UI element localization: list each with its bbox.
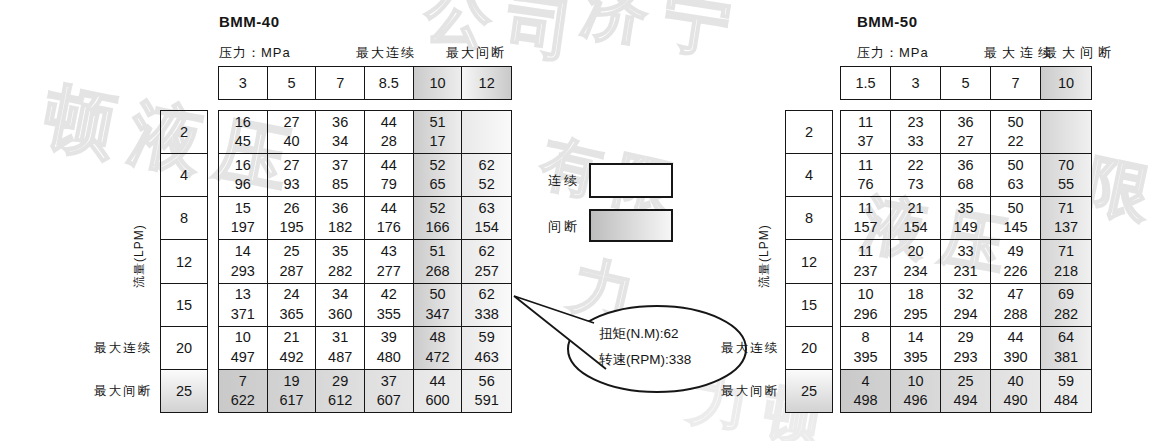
data-cell: 42355 bbox=[365, 284, 414, 327]
speed-value: 617 bbox=[279, 391, 303, 411]
torque-value: 52 bbox=[429, 156, 445, 176]
torque-value: 25 bbox=[957, 372, 973, 392]
torque-value: 50 bbox=[1007, 199, 1023, 219]
speed-value: 37 bbox=[857, 132, 873, 152]
max-continuous-header: 最大连续 bbox=[356, 44, 416, 62]
torque-value: 64 bbox=[1058, 328, 1074, 348]
pressure-value: 3 bbox=[239, 75, 247, 91]
torque-value: 50 bbox=[1007, 113, 1023, 133]
torque-value: 16 bbox=[235, 113, 251, 133]
data-cell: 13371 bbox=[219, 284, 268, 327]
torque-value: 62 bbox=[479, 242, 495, 262]
data-cell: 6252 bbox=[462, 154, 511, 197]
torque-value: 10 bbox=[857, 285, 873, 305]
speed-value: 93 bbox=[283, 175, 299, 195]
torque-value: 27 bbox=[283, 113, 299, 133]
flow-value: 20 bbox=[801, 340, 817, 356]
flow-value: 25 bbox=[176, 383, 192, 399]
data-cell: 14395 bbox=[891, 327, 941, 370]
torque-value: 11 bbox=[858, 242, 873, 262]
speed-value: 282 bbox=[1054, 305, 1078, 325]
torque-value: 44 bbox=[381, 113, 397, 133]
data-cell: 52166 bbox=[414, 197, 463, 240]
speed-value: 296 bbox=[853, 305, 877, 325]
torque-value: 29 bbox=[332, 372, 348, 392]
speed-value: 63 bbox=[1007, 175, 1023, 195]
data-cell: 47288 bbox=[991, 284, 1041, 327]
speed-value: 282 bbox=[328, 262, 352, 282]
pressure-cell: 10 bbox=[414, 67, 463, 99]
speed-value: 277 bbox=[377, 262, 401, 282]
data-cell: 48472 bbox=[414, 327, 463, 370]
speed-value: 295 bbox=[903, 305, 927, 325]
max-intermittent-row-label: 最大间断 bbox=[659, 383, 779, 400]
torque-value: 23 bbox=[907, 113, 923, 133]
torque-value: 10 bbox=[907, 372, 923, 392]
flow-axis-label: 流量(LPM) bbox=[756, 224, 773, 288]
torque-value: 44 bbox=[1007, 328, 1023, 348]
data-cell: 37607 bbox=[365, 370, 414, 412]
torque-value: 63 bbox=[479, 199, 495, 219]
speed-value: 76 bbox=[857, 175, 873, 195]
torque-value: 44 bbox=[381, 199, 397, 219]
pressure-header-row: 1.535710 bbox=[840, 66, 1092, 100]
torque-value: 51 bbox=[429, 113, 445, 133]
speed-value: 65 bbox=[429, 175, 445, 195]
max-continuous-row-label: 最大连续 bbox=[32, 340, 152, 357]
speed-value: 40 bbox=[283, 132, 299, 152]
torque-value: 70 bbox=[1058, 156, 1074, 176]
flow-value: 2 bbox=[180, 124, 188, 140]
torque-value: 14 bbox=[235, 242, 251, 262]
flow-cell: 2 bbox=[161, 111, 207, 154]
table-title: BMM-40 bbox=[219, 13, 280, 30]
pressure-value: 5 bbox=[287, 75, 295, 91]
torque-value: 40 bbox=[1007, 372, 1023, 392]
data-cell: 5117 bbox=[414, 111, 463, 154]
speed-value: 472 bbox=[425, 348, 449, 368]
data-cell: 3785 bbox=[316, 154, 365, 197]
speed-value: 154 bbox=[903, 218, 927, 238]
torque-value: 69 bbox=[1058, 285, 1074, 305]
data-cell: 35149 bbox=[941, 197, 991, 240]
speed-value: 494 bbox=[953, 391, 977, 411]
pressure-cell: 5 bbox=[941, 67, 991, 99]
torque-value: 11 bbox=[858, 113, 873, 133]
flow-cell: 20 bbox=[786, 327, 832, 370]
data-cell: 69282 bbox=[1041, 284, 1091, 327]
speed-value: 381 bbox=[1054, 348, 1078, 368]
callout-tail bbox=[514, 296, 606, 369]
data-cell: 29293 bbox=[941, 327, 991, 370]
data-cell: 5022 bbox=[991, 111, 1041, 154]
torque-value: 62 bbox=[479, 156, 495, 176]
data-cell: 49226 bbox=[991, 240, 1041, 283]
data-cell: 7055 bbox=[1041, 154, 1091, 197]
max-continuous-row-label: 最大连续 bbox=[659, 340, 779, 357]
torque-value: 62 bbox=[479, 285, 495, 305]
flow-value: 8 bbox=[805, 210, 813, 226]
speed-value: 34 bbox=[332, 132, 348, 152]
speed-value: 226 bbox=[1003, 262, 1027, 282]
table-title: BMM-50 bbox=[857, 13, 918, 30]
data-cell: 18295 bbox=[891, 284, 941, 327]
torque-value: 16 bbox=[235, 156, 251, 176]
torque-value: 39 bbox=[381, 328, 397, 348]
speed-value: 27 bbox=[957, 132, 973, 152]
data-cell: 20234 bbox=[891, 240, 941, 283]
data-cell: 4479 bbox=[365, 154, 414, 197]
data-cell: 8395 bbox=[841, 327, 891, 370]
speed-value: 52 bbox=[479, 175, 495, 195]
flow-value: 2 bbox=[805, 124, 813, 140]
data-cell: 3627 bbox=[941, 111, 991, 154]
speed-value: 355 bbox=[377, 305, 401, 325]
torque-value: 48 bbox=[429, 328, 445, 348]
data-cell: 51268 bbox=[414, 240, 463, 283]
data-cell: 2273 bbox=[891, 154, 941, 197]
torque-value: 47 bbox=[1007, 285, 1023, 305]
pressure-value: 8.5 bbox=[379, 75, 399, 91]
speed-value: 484 bbox=[1054, 391, 1078, 411]
speed-value: 463 bbox=[475, 348, 499, 368]
data-cell: 2740 bbox=[268, 111, 317, 154]
pressure-cell: 8.5 bbox=[365, 67, 414, 99]
torque-value: 13 bbox=[235, 285, 251, 305]
flow-axis-label: 流量(LPM) bbox=[131, 224, 148, 288]
data-cell: 3634 bbox=[316, 111, 365, 154]
data-cell: 39480 bbox=[365, 327, 414, 370]
speed-value: 176 bbox=[377, 218, 401, 238]
data-grid: 1137233336275022117622733668506370551115… bbox=[840, 110, 1092, 413]
speed-value: 22 bbox=[1007, 132, 1023, 152]
data-cell: 10497 bbox=[219, 327, 268, 370]
data-cell: 71218 bbox=[1041, 240, 1091, 283]
torque-value: 51 bbox=[429, 242, 445, 262]
torque-value: 8 bbox=[861, 328, 869, 348]
torque-value: 11 bbox=[858, 199, 873, 219]
speed-value: 45 bbox=[235, 132, 251, 152]
speed-value: 612 bbox=[328, 391, 352, 411]
flow-cell: 12 bbox=[786, 240, 832, 283]
flow-value: 20 bbox=[176, 340, 192, 356]
flow-cell: 25 bbox=[161, 370, 207, 412]
pressure-cell: 3 bbox=[891, 67, 941, 99]
max-intermittent-header: 最大间断 bbox=[1044, 44, 1116, 62]
data-cell: 43277 bbox=[365, 240, 414, 283]
pressure-unit-label: 压力：MPa bbox=[857, 44, 929, 62]
speed-value: 237 bbox=[853, 262, 877, 282]
data-cell: 2793 bbox=[268, 154, 317, 197]
speed-value: 487 bbox=[328, 348, 352, 368]
data-cell: 25287 bbox=[268, 240, 317, 283]
flow-cell: 15 bbox=[161, 284, 207, 327]
flow-cell: 8 bbox=[161, 197, 207, 240]
speed-value: 137 bbox=[1054, 218, 1078, 238]
torque-value: 27 bbox=[283, 156, 299, 176]
torque-value: 71 bbox=[1058, 199, 1074, 219]
data-cell: 26195 bbox=[268, 197, 317, 240]
speed-value: 17 bbox=[429, 132, 445, 152]
torque-value: 59 bbox=[479, 328, 495, 348]
speed-value: 257 bbox=[475, 262, 499, 282]
speed-value: 268 bbox=[425, 262, 449, 282]
speed-value: 497 bbox=[231, 348, 255, 368]
speed-value: 157 bbox=[853, 218, 877, 238]
speed-value: 480 bbox=[377, 348, 401, 368]
pressure-value: 3 bbox=[911, 75, 919, 91]
data-cell: 40490 bbox=[991, 370, 1041, 412]
pressure-cell: 7 bbox=[991, 67, 1041, 99]
speed-value: 338 bbox=[475, 305, 499, 325]
datasheet-canvas: 公司 济宁 顿液压 有限 力 液压 限 力顿 连续 间断 扭矩(N.M):62 … bbox=[0, 0, 1151, 441]
data-cell: 19617 bbox=[268, 370, 317, 412]
speed-value: 96 bbox=[235, 175, 251, 195]
pressure-cell: 3 bbox=[219, 67, 268, 99]
flow-value: 4 bbox=[180, 167, 188, 183]
torque-value: 49 bbox=[1007, 242, 1023, 262]
torque-value: 24 bbox=[283, 285, 299, 305]
speed-value: 288 bbox=[1003, 305, 1027, 325]
data-cell: 1137 bbox=[841, 111, 891, 154]
data-cell: 35282 bbox=[316, 240, 365, 283]
pressure-value: 5 bbox=[961, 75, 969, 91]
flow-value: 15 bbox=[176, 297, 192, 313]
torque-value: 36 bbox=[332, 113, 348, 133]
torque-value: 22 bbox=[907, 156, 923, 176]
speed-value: 33 bbox=[907, 132, 923, 152]
flow-value: 8 bbox=[180, 210, 188, 226]
torque-value: 36 bbox=[957, 156, 973, 176]
speed-value: 498 bbox=[853, 391, 877, 411]
data-cell: 44176 bbox=[365, 197, 414, 240]
torque-value: 25 bbox=[283, 242, 299, 262]
torque-value: 32 bbox=[957, 285, 973, 305]
data-cell bbox=[1041, 111, 1091, 154]
data-cell: 1645 bbox=[219, 111, 268, 154]
data-cell: 59484 bbox=[1041, 370, 1091, 412]
pressure-cell: 7 bbox=[316, 67, 365, 99]
torque-value: 11 bbox=[858, 156, 873, 176]
pressure-cell: 1.5 bbox=[841, 67, 891, 99]
data-cell: 44600 bbox=[414, 370, 463, 412]
torque-value: 56 bbox=[479, 372, 495, 392]
flow-value: 15 bbox=[801, 297, 817, 313]
data-cell: 1696 bbox=[219, 154, 268, 197]
pressure-header-row: 3578.51012 bbox=[218, 66, 512, 100]
torque-value: 4 bbox=[861, 372, 869, 392]
speed-value: 234 bbox=[903, 262, 927, 282]
flow-value: 4 bbox=[805, 167, 813, 183]
speed-value: 145 bbox=[1003, 218, 1027, 238]
flow-header-column: 24812152025 bbox=[785, 110, 833, 413]
speed-value: 293 bbox=[953, 348, 977, 368]
data-cell: 25494 bbox=[941, 370, 991, 412]
pressure-cell: 10 bbox=[1041, 67, 1091, 99]
torque-value: 37 bbox=[381, 372, 397, 392]
torque-value: 7 bbox=[239, 372, 247, 392]
data-cell: 34360 bbox=[316, 284, 365, 327]
max-intermittent-row-label: 最大间断 bbox=[32, 383, 152, 400]
data-cell: 7622 bbox=[219, 370, 268, 412]
speed-value: 28 bbox=[381, 132, 397, 152]
speed-value: 360 bbox=[328, 305, 352, 325]
pressure-value: 7 bbox=[336, 75, 344, 91]
data-cell: 5063 bbox=[991, 154, 1041, 197]
data-cell: 1176 bbox=[841, 154, 891, 197]
speed-value: 607 bbox=[377, 391, 401, 411]
speed-value: 371 bbox=[231, 305, 255, 325]
data-cell: 32294 bbox=[941, 284, 991, 327]
torque-value: 36 bbox=[332, 199, 348, 219]
speed-value: 390 bbox=[1003, 348, 1027, 368]
torque-value: 21 bbox=[907, 199, 923, 219]
data-cell: 11157 bbox=[841, 197, 891, 240]
pressure-value: 10 bbox=[1058, 75, 1074, 91]
speed-value: 294 bbox=[953, 305, 977, 325]
torque-value: 50 bbox=[429, 285, 445, 305]
data-cell: 10296 bbox=[841, 284, 891, 327]
data-cell: 29612 bbox=[316, 370, 365, 412]
pressure-cell: 5 bbox=[268, 67, 317, 99]
flow-cell: 15 bbox=[786, 284, 832, 327]
data-cell: 64381 bbox=[1041, 327, 1091, 370]
data-cell: 36182 bbox=[316, 197, 365, 240]
data-cell: 63154 bbox=[462, 197, 511, 240]
data-cell: 21492 bbox=[268, 327, 317, 370]
data-cell: 4498 bbox=[841, 370, 891, 412]
torque-value: 52 bbox=[429, 199, 445, 219]
speed-value: 218 bbox=[1054, 262, 1078, 282]
torque-value: 31 bbox=[332, 328, 348, 348]
speed-value: 591 bbox=[475, 391, 499, 411]
torque-value: 44 bbox=[381, 156, 397, 176]
data-cell: 24365 bbox=[268, 284, 317, 327]
speed-value: 492 bbox=[279, 348, 303, 368]
data-cell: 56591 bbox=[462, 370, 511, 412]
data-cell: 33231 bbox=[941, 240, 991, 283]
torque-value: 42 bbox=[381, 285, 397, 305]
torque-value: 36 bbox=[957, 113, 973, 133]
data-cell: 3668 bbox=[941, 154, 991, 197]
torque-value: 35 bbox=[957, 199, 973, 219]
pressure-value: 7 bbox=[1011, 75, 1019, 91]
torque-value: 37 bbox=[332, 156, 348, 176]
torque-value: 26 bbox=[283, 199, 299, 219]
pressure-value: 10 bbox=[429, 75, 445, 91]
torque-value: 18 bbox=[907, 285, 923, 305]
speed-value: 622 bbox=[231, 391, 255, 411]
data-cell: 62338 bbox=[462, 284, 511, 327]
speed-value: 68 bbox=[957, 175, 973, 195]
data-cell: 44390 bbox=[991, 327, 1041, 370]
torque-value: 29 bbox=[957, 328, 973, 348]
speed-value: 166 bbox=[425, 218, 449, 238]
data-cell: 21154 bbox=[891, 197, 941, 240]
pressure-unit-label: 压力：MPa bbox=[219, 44, 291, 62]
flow-cell: 2 bbox=[786, 111, 832, 154]
pressure-value: 1.5 bbox=[855, 75, 875, 91]
data-cell: 10496 bbox=[891, 370, 941, 412]
data-cell: 31487 bbox=[316, 327, 365, 370]
data-cell: 4428 bbox=[365, 111, 414, 154]
data-cell: 2333 bbox=[891, 111, 941, 154]
torque-value: 14 bbox=[907, 328, 923, 348]
speed-value: 231 bbox=[953, 262, 977, 282]
speed-value: 197 bbox=[231, 218, 255, 238]
speed-value: 600 bbox=[425, 391, 449, 411]
torque-value: 34 bbox=[332, 285, 348, 305]
flow-value: 12 bbox=[801, 254, 817, 270]
speed-value: 293 bbox=[231, 262, 255, 282]
speed-value: 154 bbox=[475, 218, 499, 238]
flow-value: 25 bbox=[801, 383, 817, 399]
torque-value: 43 bbox=[381, 242, 397, 262]
data-cell: 50145 bbox=[991, 197, 1041, 240]
data-cell: 15197 bbox=[219, 197, 268, 240]
torque-value: 50 bbox=[1007, 156, 1023, 176]
speed-value: 347 bbox=[425, 305, 449, 325]
flow-cell: 20 bbox=[161, 327, 207, 370]
speed-value: 182 bbox=[328, 218, 352, 238]
data-cell: 11237 bbox=[841, 240, 891, 283]
speed-value: 365 bbox=[279, 305, 303, 325]
flow-header-column: 24812152025 bbox=[160, 110, 208, 413]
data-grid: 1645274036344428511716962793378544795265… bbox=[218, 110, 512, 413]
torque-value: 35 bbox=[332, 242, 348, 262]
torque-value: 21 bbox=[283, 328, 299, 348]
data-cell: 62257 bbox=[462, 240, 511, 283]
speed-value: 395 bbox=[903, 348, 927, 368]
torque-value: 59 bbox=[1058, 372, 1074, 392]
flow-cell: 4 bbox=[161, 154, 207, 197]
speed-value: 85 bbox=[332, 175, 348, 195]
data-cell: 71137 bbox=[1041, 197, 1091, 240]
flow-cell: 12 bbox=[161, 240, 207, 283]
speed-value: 395 bbox=[853, 348, 877, 368]
torque-value: 19 bbox=[283, 372, 299, 392]
speed-value: 79 bbox=[381, 175, 397, 195]
flow-cell: 25 bbox=[786, 370, 832, 412]
speed-value: 287 bbox=[279, 262, 303, 282]
speed-value: 149 bbox=[953, 218, 977, 238]
max-intermittent-header: 最大间断 bbox=[446, 44, 506, 62]
torque-value: 10 bbox=[235, 328, 251, 348]
torque-value: 33 bbox=[957, 242, 973, 262]
speed-value: 73 bbox=[907, 175, 923, 195]
data-cell bbox=[462, 111, 511, 154]
torque-value: 71 bbox=[1058, 242, 1074, 262]
pressure-value: 12 bbox=[479, 75, 495, 91]
data-cell: 50347 bbox=[414, 284, 463, 327]
speed-value: 496 bbox=[903, 391, 927, 411]
torque-value: 20 bbox=[907, 242, 923, 262]
speed-value: 55 bbox=[1058, 175, 1074, 195]
flow-cell: 4 bbox=[786, 154, 832, 197]
torque-value: 15 bbox=[235, 199, 251, 219]
data-cell: 5265 bbox=[414, 154, 463, 197]
flow-cell: 8 bbox=[786, 197, 832, 240]
data-cell: 59463 bbox=[462, 327, 511, 370]
flow-value: 12 bbox=[176, 254, 192, 270]
speed-value: 195 bbox=[279, 218, 303, 238]
pressure-cell: 12 bbox=[462, 67, 511, 99]
data-cell: 14293 bbox=[219, 240, 268, 283]
speed-value: 490 bbox=[1003, 391, 1027, 411]
torque-value: 44 bbox=[429, 372, 445, 392]
